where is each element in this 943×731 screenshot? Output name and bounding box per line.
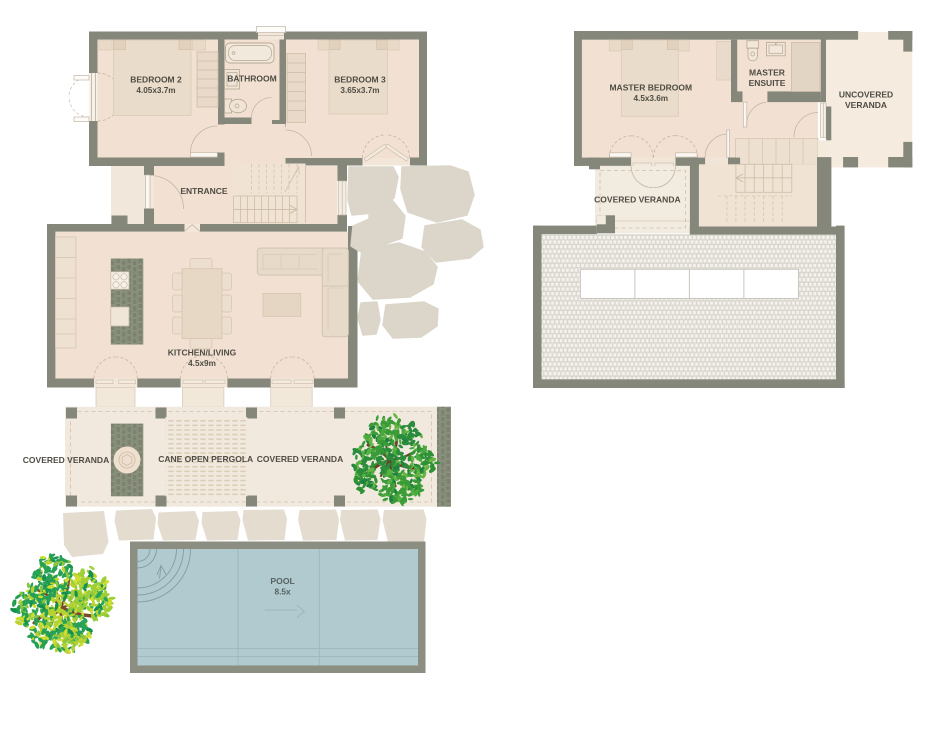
svg-text:MASTER BEDROOM: MASTER BEDROOM: [609, 83, 692, 93]
svg-text:4.5x9m: 4.5x9m: [188, 359, 216, 368]
svg-text:KITCHEN/LIVING: KITCHEN/LIVING: [168, 348, 237, 358]
svg-text:3.65x3.7m: 3.65x3.7m: [340, 86, 379, 95]
svg-text:BATHROOM: BATHROOM: [227, 74, 276, 84]
svg-text:VERANDA: VERANDA: [845, 100, 887, 110]
svg-text:COVERED VERANDA: COVERED VERANDA: [257, 454, 343, 464]
svg-text:CANE OPEN PERGOLA: CANE OPEN PERGOLA: [158, 454, 253, 464]
svg-text:MASTER: MASTER: [749, 68, 785, 78]
svg-text:ENSUITE: ENSUITE: [749, 78, 786, 88]
svg-text:COVERED VERANDA: COVERED VERANDA: [23, 455, 109, 465]
svg-text:BEDROOM 2: BEDROOM 2: [130, 75, 182, 85]
svg-text:POOL: POOL: [270, 576, 294, 586]
svg-text:UNCOVERED: UNCOVERED: [839, 90, 893, 100]
svg-text:4.5x3.6m: 4.5x3.6m: [633, 94, 668, 103]
svg-text:BEDROOM 3: BEDROOM 3: [334, 75, 386, 85]
svg-text:8.5x: 8.5x: [275, 587, 292, 597]
svg-text:COVERED VERANDA: COVERED VERANDA: [594, 194, 680, 204]
svg-text:4.05x3.7m: 4.05x3.7m: [136, 86, 175, 95]
svg-text:ENTRANCE: ENTRANCE: [180, 186, 228, 196]
